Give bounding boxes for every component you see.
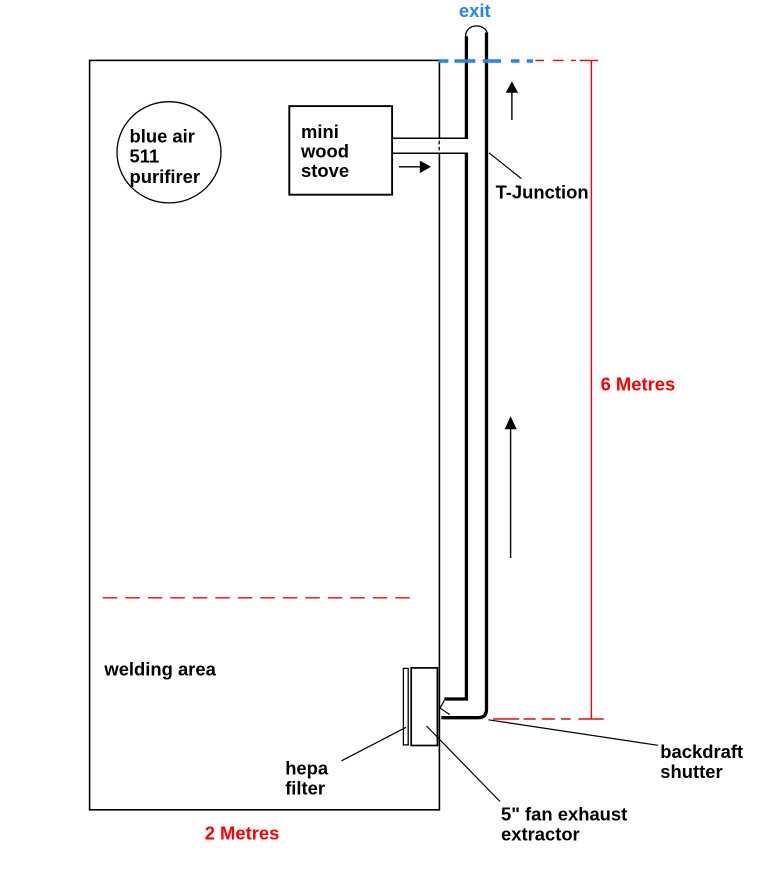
svg-text:hepa: hepa (285, 758, 329, 779)
svg-text:shutter: shutter (660, 761, 722, 782)
svg-text:T-Junction: T-Junction (496, 182, 589, 203)
svg-text:extractor: extractor (501, 824, 580, 845)
svg-text:511: 511 (130, 146, 160, 167)
svg-text:wood: wood (300, 140, 349, 161)
svg-text:6 Metres: 6 Metres (601, 374, 676, 395)
svg-text:2 Metres: 2 Metres (205, 822, 280, 843)
svg-text:purifirer: purifirer (130, 166, 201, 187)
svg-text:5" fan exhaust: 5" fan exhaust (501, 804, 627, 825)
svg-text:filter: filter (285, 778, 325, 799)
svg-text:mini: mini (301, 121, 339, 142)
svg-text:backdraft: backdraft (660, 741, 743, 762)
svg-text:exit: exit (459, 0, 491, 21)
svg-text:stove: stove (301, 160, 349, 181)
svg-text:welding area: welding area (103, 659, 216, 680)
svg-text:blue air: blue air (130, 125, 195, 146)
